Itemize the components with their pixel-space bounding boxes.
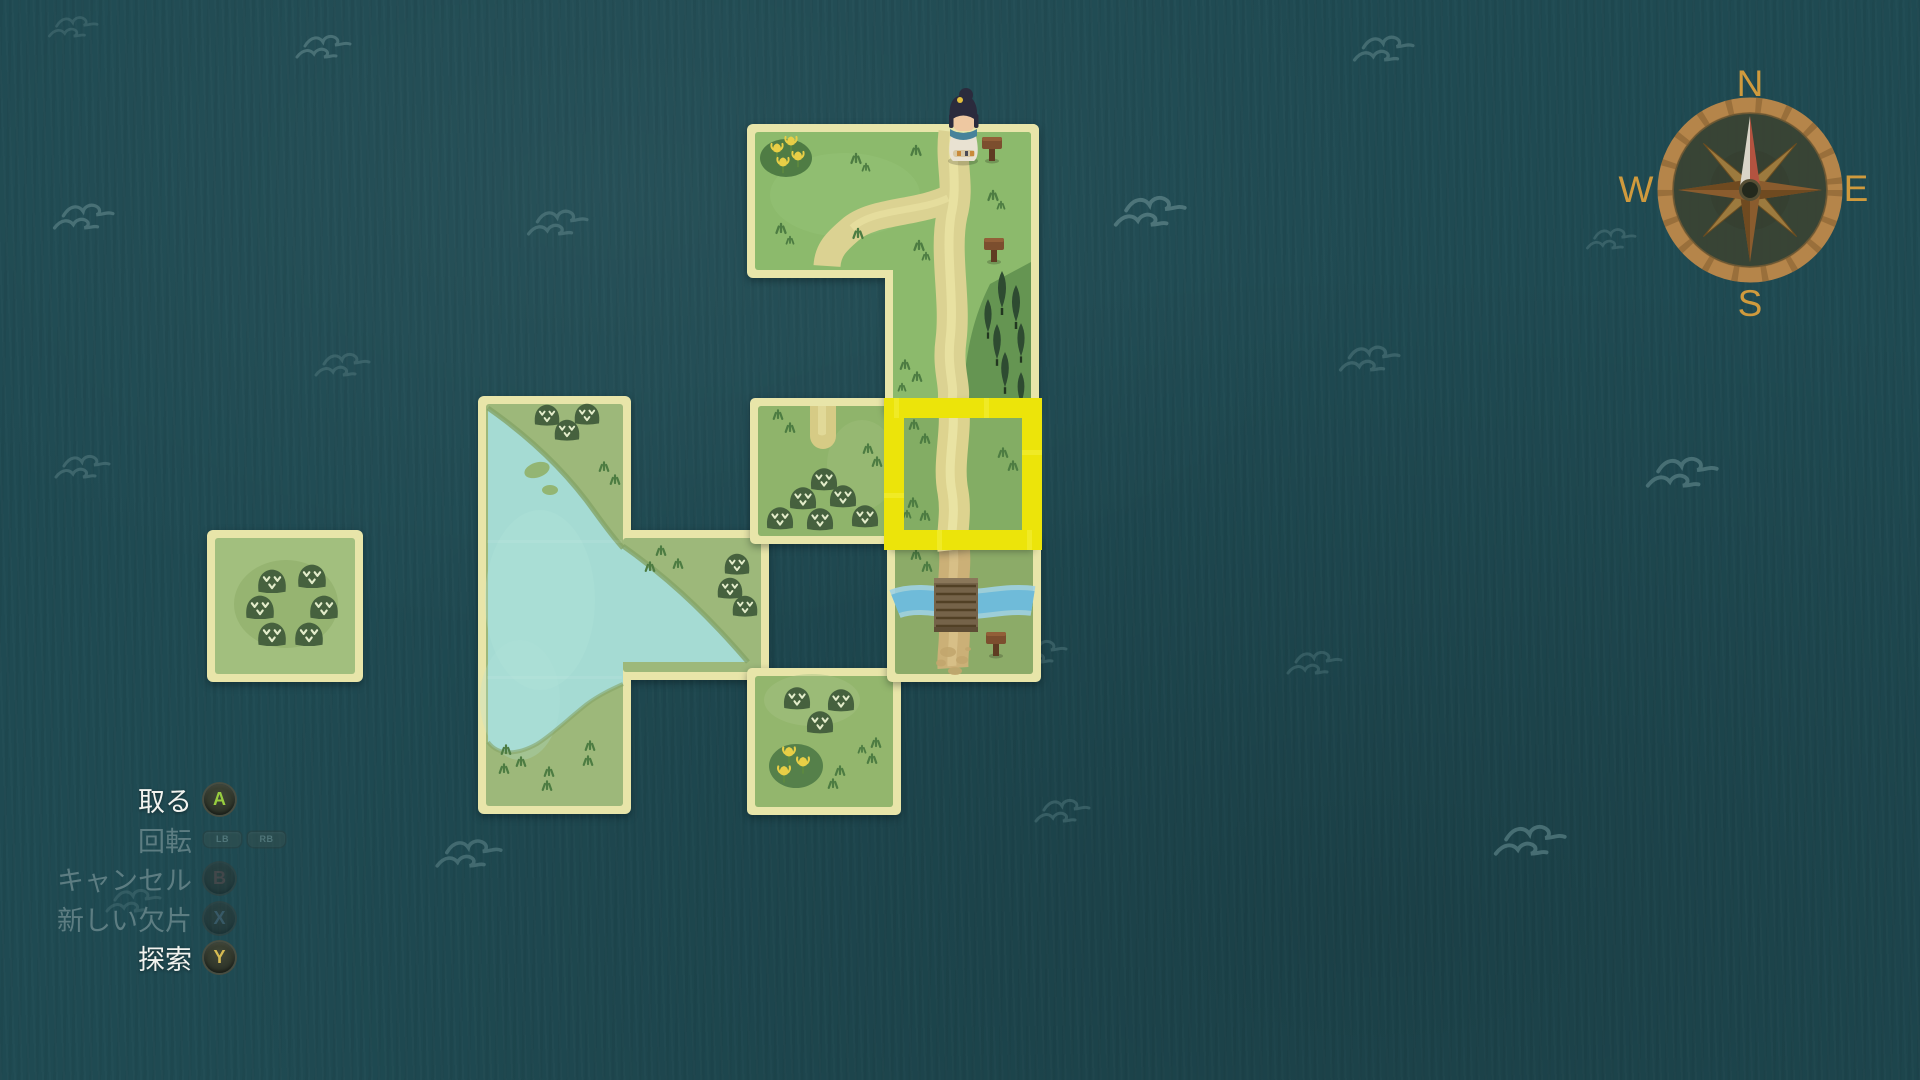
action-new-piece-label: 新しい欠片 — [42, 899, 192, 938]
action-rotate: 回転 LB RB — [42, 820, 285, 860]
path-road-highlight — [950, 404, 953, 548]
wave-icon — [1341, 347, 1399, 370]
action-new-piece: 新しい欠片 X — [42, 899, 285, 939]
flower-patch — [769, 744, 823, 788]
compass: N E S W — [1619, 63, 1869, 324]
wave-icon — [529, 211, 587, 234]
button-lb-icon: LB — [204, 832, 241, 847]
button-a-icon[interactable]: A — [204, 784, 235, 815]
wave-icon — [316, 354, 369, 375]
held-path-piece[interactable] — [890, 402, 1034, 550]
button-b-icon: B — [204, 863, 235, 894]
wave-icon — [1648, 459, 1717, 486]
game-screen: N E S W 取る A 回転 LB RB キャンセル B 新しい欠片 X 探索… — [0, 0, 1920, 1080]
character-hair-tie — [957, 97, 963, 103]
button-y-icon[interactable]: Y — [204, 942, 235, 973]
wave-icon — [49, 18, 97, 37]
compass-east-label: E — [1844, 168, 1869, 209]
action-menu: 取る A 回転 LB RB キャンセル B 新しい欠片 X 探索 Y — [42, 780, 285, 978]
path-stub-highlight — [818, 406, 826, 436]
bush-flower-piece[interactable] — [747, 668, 901, 815]
wave-icon — [1288, 652, 1341, 673]
bush-path-stub-piece[interactable] — [750, 398, 900, 544]
character-hair-lock — [949, 114, 954, 128]
flower-patch — [760, 139, 812, 177]
wave-icon — [1355, 37, 1413, 60]
path-road-highlight — [949, 136, 954, 400]
compass-hub — [1741, 181, 1760, 200]
path-fork-piece[interactable] — [747, 124, 1039, 414]
wave-icon — [297, 36, 350, 57]
action-take-label: 取る — [42, 780, 192, 819]
compass-south-label: S — [1738, 283, 1763, 324]
wave-icon — [56, 456, 109, 477]
wave-icon — [1587, 230, 1635, 249]
action-explore[interactable]: 探索 Y — [42, 938, 285, 978]
wave-icon — [1036, 800, 1089, 821]
wave-icon — [1116, 198, 1185, 225]
character-belt-detail — [965, 151, 968, 156]
compass-north-label: N — [1737, 63, 1764, 104]
button-x-icon: X — [204, 903, 235, 934]
action-rotate-label: 回転 — [42, 820, 192, 859]
bridge — [934, 578, 978, 632]
action-cancel: キャンセル B — [42, 859, 285, 899]
bridge-piece[interactable] — [887, 536, 1041, 682]
character-hair-lock — [974, 114, 979, 128]
compass-west-label: W — [1619, 169, 1654, 210]
map-scene: N E S W — [0, 0, 1920, 1080]
character-belt-detail — [957, 151, 961, 156]
action-take[interactable]: 取る A — [42, 780, 285, 820]
wave-icon — [1496, 827, 1565, 854]
player-character — [948, 88, 979, 166]
action-explore-label: 探索 — [42, 938, 192, 977]
wave-icon — [437, 841, 501, 866]
bush-piece[interactable] — [207, 530, 363, 682]
button-rb-icon: RB — [248, 832, 285, 847]
character-belt-detail — [970, 151, 974, 156]
action-cancel-label: キャンセル — [42, 859, 192, 898]
wave-icon — [55, 205, 113, 228]
lake-piece[interactable] — [478, 396, 769, 814]
